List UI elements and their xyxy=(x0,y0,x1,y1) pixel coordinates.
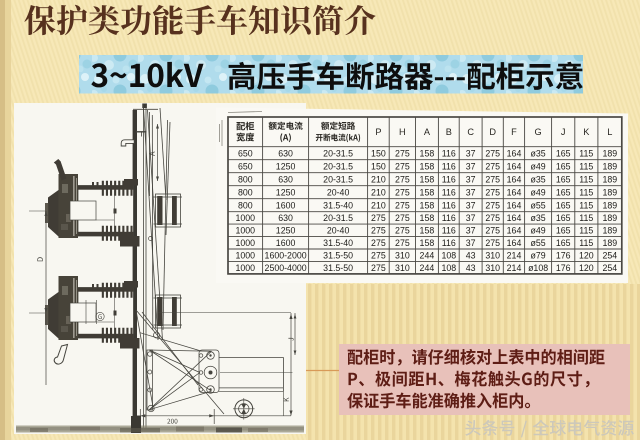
svg-text:20-40: 20-40 xyxy=(327,187,350,197)
svg-text:H: H xyxy=(399,127,406,137)
svg-text:31.5-40: 31.5-40 xyxy=(323,200,353,210)
svg-text:165: 165 xyxy=(556,148,571,158)
svg-text:275: 275 xyxy=(485,213,500,223)
svg-text:164: 164 xyxy=(507,200,522,210)
svg-text:1000: 1000 xyxy=(236,238,256,248)
svg-text:275: 275 xyxy=(371,225,386,235)
svg-text:275: 275 xyxy=(485,174,500,184)
svg-text:115: 115 xyxy=(579,161,593,171)
svg-text:37: 37 xyxy=(466,200,476,210)
svg-text:275: 275 xyxy=(485,161,500,171)
svg-text:116: 116 xyxy=(442,174,456,184)
svg-text:A: A xyxy=(424,127,431,137)
svg-text:ø108: ø108 xyxy=(528,263,548,273)
svg-text:189: 189 xyxy=(602,225,617,235)
svg-text:116: 116 xyxy=(442,238,456,248)
svg-text:214: 214 xyxy=(507,263,522,273)
svg-text:ø79: ø79 xyxy=(531,250,546,260)
svg-text:275: 275 xyxy=(485,148,500,158)
svg-text:1000: 1000 xyxy=(236,213,256,223)
svg-text:158: 158 xyxy=(420,161,435,171)
svg-text:37: 37 xyxy=(466,148,476,158)
svg-text:150: 150 xyxy=(371,148,386,158)
svg-text:310: 310 xyxy=(395,250,410,260)
svg-text:1000: 1000 xyxy=(236,250,256,260)
svg-text:31.5-40: 31.5-40 xyxy=(323,238,353,248)
svg-text:120: 120 xyxy=(579,263,594,273)
svg-text:800: 800 xyxy=(238,187,253,197)
svg-text:158: 158 xyxy=(420,148,435,158)
svg-text:37: 37 xyxy=(466,187,476,197)
svg-text:37: 37 xyxy=(466,213,476,223)
svg-text:164: 164 xyxy=(507,161,522,171)
svg-text:ø55: ø55 xyxy=(531,238,546,248)
svg-text:20-31.5: 20-31.5 xyxy=(323,213,353,223)
svg-text:189: 189 xyxy=(602,213,617,223)
svg-text:1000: 1000 xyxy=(236,263,256,273)
svg-text:800: 800 xyxy=(238,200,253,210)
svg-text:176: 176 xyxy=(556,263,571,273)
svg-text:2500-4000: 2500-4000 xyxy=(265,263,307,273)
svg-text:116: 116 xyxy=(442,200,456,210)
svg-text:ø35: ø35 xyxy=(531,213,546,223)
svg-text:P: P xyxy=(375,127,381,137)
svg-text:275: 275 xyxy=(485,200,500,210)
svg-text:650: 650 xyxy=(238,161,253,171)
svg-text:116: 116 xyxy=(442,161,456,171)
svg-text:275: 275 xyxy=(485,225,500,235)
svg-text:275: 275 xyxy=(395,161,410,171)
svg-text:210: 210 xyxy=(371,187,386,197)
svg-text:630: 630 xyxy=(278,213,293,223)
svg-text:20-31.5: 20-31.5 xyxy=(323,161,353,171)
svg-text:31.5-50: 31.5-50 xyxy=(323,250,353,260)
svg-text:275: 275 xyxy=(371,250,386,260)
svg-text:K: K xyxy=(583,127,590,137)
svg-text:214: 214 xyxy=(507,250,522,260)
svg-text:275: 275 xyxy=(485,187,500,197)
svg-text:150: 150 xyxy=(371,161,386,171)
svg-text:1250: 1250 xyxy=(276,161,296,171)
svg-text:20-31.5: 20-31.5 xyxy=(323,174,353,184)
svg-text:20-40: 20-40 xyxy=(327,225,350,235)
svg-text:158: 158 xyxy=(420,238,435,248)
svg-text:310: 310 xyxy=(395,263,410,273)
svg-text:275: 275 xyxy=(371,263,386,273)
svg-text:1600-2000: 1600-2000 xyxy=(265,250,307,260)
svg-text:1000: 1000 xyxy=(236,225,256,235)
svg-text:37: 37 xyxy=(466,225,476,235)
svg-text:310: 310 xyxy=(485,263,500,273)
svg-text:L: L xyxy=(607,127,612,137)
svg-text:164: 164 xyxy=(507,213,522,223)
svg-text:115: 115 xyxy=(579,238,593,248)
svg-text:275: 275 xyxy=(371,213,386,223)
svg-text:189: 189 xyxy=(602,174,617,184)
svg-text:275: 275 xyxy=(395,213,410,223)
svg-text:F: F xyxy=(511,127,517,137)
svg-text:C: C xyxy=(467,127,474,137)
svg-text:37: 37 xyxy=(466,161,476,171)
svg-text:275: 275 xyxy=(395,174,410,184)
svg-text:J: J xyxy=(561,127,566,137)
svg-text:ø35: ø35 xyxy=(531,174,546,184)
svg-text:244: 244 xyxy=(420,263,435,273)
svg-text:275: 275 xyxy=(395,238,410,248)
svg-text:244: 244 xyxy=(420,250,435,260)
svg-text:164: 164 xyxy=(507,174,522,184)
svg-text:275: 275 xyxy=(395,200,410,210)
svg-text:275: 275 xyxy=(395,148,410,158)
svg-text:116: 116 xyxy=(442,213,456,223)
svg-text:164: 164 xyxy=(507,225,522,235)
svg-text:189: 189 xyxy=(602,148,617,158)
svg-text:116: 116 xyxy=(442,187,456,197)
svg-text:37: 37 xyxy=(466,238,476,248)
svg-text:158: 158 xyxy=(420,225,435,235)
svg-text:1600: 1600 xyxy=(276,238,296,248)
svg-text:189: 189 xyxy=(602,161,617,171)
svg-text:189: 189 xyxy=(602,187,617,197)
svg-text:165: 165 xyxy=(556,225,571,235)
svg-text:B: B xyxy=(446,127,452,137)
svg-text:189: 189 xyxy=(602,200,617,210)
svg-text:ø49: ø49 xyxy=(531,225,546,235)
svg-text:275: 275 xyxy=(485,238,500,248)
svg-text:43: 43 xyxy=(466,250,476,260)
svg-text:20-31.5: 20-31.5 xyxy=(323,148,353,158)
svg-text:164: 164 xyxy=(507,187,522,197)
svg-text:116: 116 xyxy=(442,225,456,235)
svg-text:120: 120 xyxy=(579,250,594,260)
svg-text:254: 254 xyxy=(602,263,617,273)
svg-text:115: 115 xyxy=(579,225,593,235)
svg-text:1250: 1250 xyxy=(276,225,296,235)
svg-text:G: G xyxy=(535,127,542,137)
svg-text:31.5-50: 31.5-50 xyxy=(323,263,353,273)
svg-text:ø49: ø49 xyxy=(531,187,546,197)
svg-text:115: 115 xyxy=(579,213,593,223)
svg-text:158: 158 xyxy=(420,174,435,184)
svg-text:165: 165 xyxy=(556,174,571,184)
svg-text:115: 115 xyxy=(579,174,593,184)
svg-text:158: 158 xyxy=(420,187,435,197)
svg-text:115: 115 xyxy=(579,200,593,210)
svg-text:164: 164 xyxy=(507,238,522,248)
svg-text:176: 176 xyxy=(556,250,571,260)
svg-text:158: 158 xyxy=(420,200,435,210)
svg-text:165: 165 xyxy=(556,200,571,210)
svg-text:108: 108 xyxy=(441,263,456,273)
svg-text:ø55: ø55 xyxy=(531,200,546,210)
svg-text:275: 275 xyxy=(371,238,386,248)
svg-text:115: 115 xyxy=(579,187,593,197)
svg-text:ø35: ø35 xyxy=(531,148,546,158)
svg-text:165: 165 xyxy=(556,213,571,223)
svg-text:275: 275 xyxy=(395,225,410,235)
svg-text:310: 310 xyxy=(485,250,500,260)
svg-text:165: 165 xyxy=(556,187,571,197)
svg-text:800: 800 xyxy=(238,174,253,184)
svg-text:165: 165 xyxy=(556,161,571,171)
svg-text:630: 630 xyxy=(278,174,293,184)
svg-text:210: 210 xyxy=(371,174,386,184)
svg-text:43: 43 xyxy=(466,263,476,273)
svg-text:116: 116 xyxy=(442,148,456,158)
svg-text:D: D xyxy=(489,127,496,137)
svg-text:189: 189 xyxy=(602,238,617,248)
svg-text:108: 108 xyxy=(441,250,456,260)
svg-text:115: 115 xyxy=(579,148,593,158)
svg-text:1600: 1600 xyxy=(276,200,296,210)
svg-text:1250: 1250 xyxy=(276,187,296,197)
svg-text:37: 37 xyxy=(466,174,476,184)
svg-text:630: 630 xyxy=(278,148,293,158)
svg-text:ø49: ø49 xyxy=(531,161,546,171)
svg-text:275: 275 xyxy=(395,187,410,197)
svg-text:254: 254 xyxy=(602,250,617,260)
svg-text:165: 165 xyxy=(556,238,571,248)
svg-text:158: 158 xyxy=(420,213,435,223)
svg-text:164: 164 xyxy=(507,148,522,158)
svg-text:650: 650 xyxy=(238,148,253,158)
svg-text:210: 210 xyxy=(371,200,386,210)
